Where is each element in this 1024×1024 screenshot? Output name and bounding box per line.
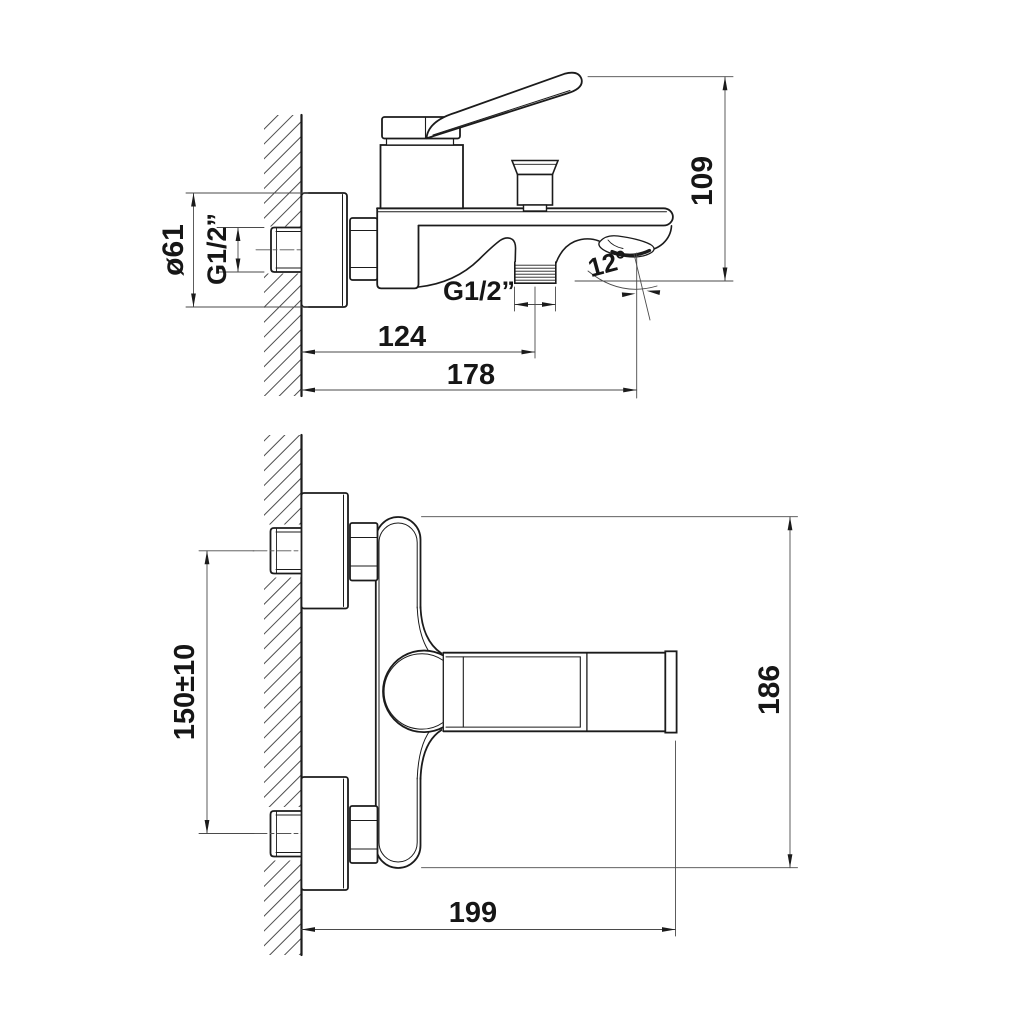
technical-drawing: ø61 G1/2” 109 12°	[0, 0, 1024, 1024]
lower-hex-nut	[350, 806, 378, 863]
wall-flange	[302, 193, 348, 307]
dimension-inlet-thread: G1/2”	[202, 213, 264, 285]
drawing-sheet: ø61 G1/2” 109 12°	[0, 0, 1024, 1024]
arm-end-cap	[665, 651, 676, 732]
outlet-thread-boss	[515, 262, 556, 283]
dimension-178: 178	[302, 359, 637, 392]
wall-hatch-lower	[264, 274, 302, 397]
cartridge-housing	[381, 145, 464, 208]
dim-label-spout-angle: 12°	[585, 244, 631, 283]
dim-label-outlet-thread: G1/2”	[443, 276, 515, 306]
dim-label-124: 124	[378, 321, 426, 353]
dim-label-mounting-centres: 150±10	[169, 644, 201, 741]
wall-hatch-upper	[264, 115, 302, 227]
lower-wall-flange	[302, 777, 349, 890]
front-view: 150±10 186 199	[169, 435, 798, 955]
hex-nut	[350, 218, 378, 280]
dimension-mounting-centres: 150±10	[169, 551, 254, 834]
handle-lever	[427, 73, 582, 139]
upper-hex-nut	[350, 523, 378, 581]
dim-label-199: 199	[449, 897, 497, 929]
upper-wall-flange	[302, 493, 349, 609]
dim-label-inlet-thread: G1/2”	[202, 213, 232, 285]
diverter-knob	[512, 161, 558, 212]
cartridge-neck	[387, 139, 454, 146]
spout-arm-front	[443, 651, 676, 732]
dim-label-height: 109	[686, 156, 719, 206]
dim-label-flange-diameter: ø61	[157, 224, 190, 276]
front-view-wall	[264, 435, 302, 955]
side-view: ø61 G1/2” 109 12°	[157, 73, 733, 398]
dimension-spout-angle: 12°	[585, 244, 660, 398]
dim-label-178: 178	[447, 359, 495, 391]
dim-label-186: 186	[753, 665, 786, 715]
